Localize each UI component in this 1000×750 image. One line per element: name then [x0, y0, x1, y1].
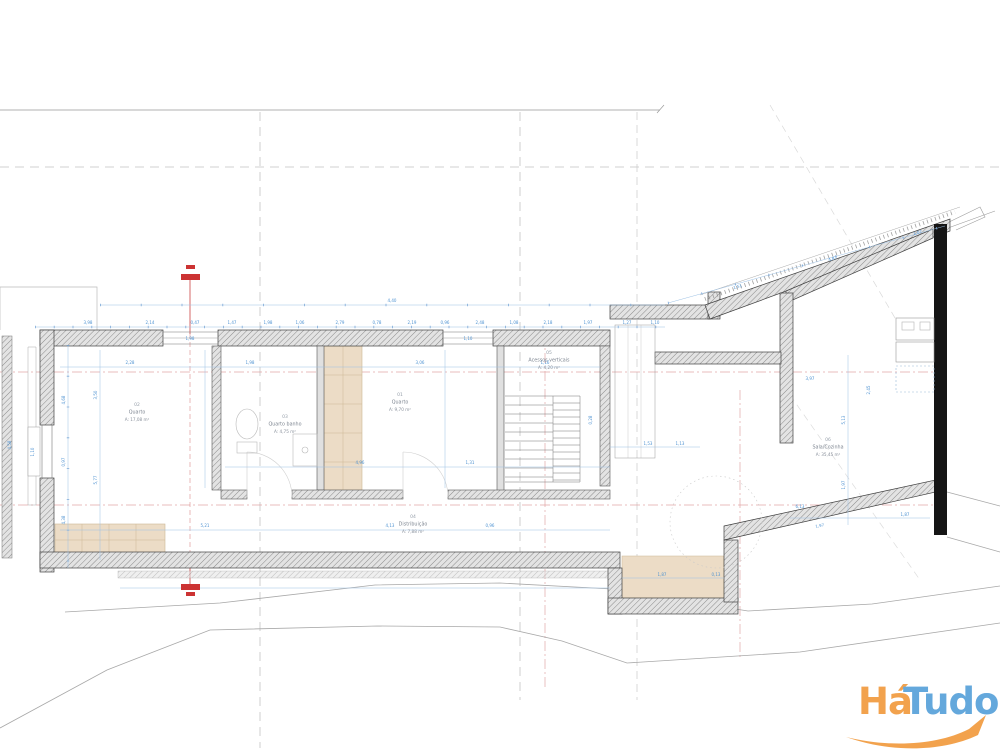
section-marker-bottom — [181, 584, 200, 590]
shower — [293, 434, 317, 466]
dimension-label: 0,47 — [191, 320, 200, 325]
toilet — [236, 409, 258, 439]
exterior-wall-bottom — [40, 552, 620, 568]
dimension-label: 1,87 — [658, 572, 667, 577]
dimension-label: 5,13 — [841, 415, 846, 424]
dimension-label: 0,96 — [441, 320, 450, 325]
dimension-label: 3,50 — [93, 390, 98, 399]
dimension-label: 1,97 — [815, 522, 825, 529]
partition-wall — [292, 490, 403, 499]
dimension-label: 3,98 — [84, 320, 93, 325]
dimension-label: 1,87 — [901, 512, 910, 517]
site-boundary — [0, 287, 97, 332]
room-area: A: 17,08 m² — [125, 417, 150, 422]
section-marker-top — [186, 265, 195, 269]
footing-line — [118, 571, 610, 578]
stairs — [505, 325, 655, 482]
dimension-label: 4,68 — [61, 395, 66, 404]
partition-wall — [448, 490, 610, 499]
dimension-label: 1,13 — [676, 441, 685, 446]
floor-plan-drawing: 3,982,140,471,471,981,062,790,782,190,96… — [0, 0, 1000, 750]
room-name: Acessos verticais — [528, 358, 570, 364]
step-out-wall — [724, 540, 738, 602]
corridor-wall-bottom — [655, 352, 781, 364]
dimension-label: 0,78 — [373, 320, 382, 325]
room-name: Sala/Cozinha — [812, 445, 843, 451]
wardrobe — [324, 346, 362, 490]
building-walls — [28, 207, 960, 614]
room-number: 02 — [134, 402, 140, 408]
dimension-label: 1,97 — [584, 320, 593, 325]
dimension-label: 3,06 — [416, 360, 425, 365]
dimension-label: 1,10 — [30, 447, 35, 456]
dimension-label: 1,53 — [644, 441, 653, 446]
exterior-wall-top — [40, 330, 163, 346]
exterior-wall-top — [493, 330, 610, 346]
dimension-label: 1,06 — [296, 320, 305, 325]
room-name: Distribuição — [399, 522, 428, 528]
roof-edge-flag — [945, 207, 985, 230]
partition-wall — [221, 490, 247, 499]
interior-wall-diagonal — [786, 229, 933, 303]
dimension-label: 0,28 — [588, 415, 593, 424]
dimension-label: 1,51 — [733, 283, 743, 290]
room-area: A: 9,70 m² — [389, 407, 411, 412]
dimension-label: 5,21 — [201, 523, 210, 528]
dimension-label: 4,58 — [7, 440, 12, 449]
room-name: Quarto — [392, 400, 409, 406]
floor-plan-image: 3,982,140,471,471,981,062,790,782,190,96… — [0, 0, 1000, 750]
dimension-label: 1,08 — [510, 320, 519, 325]
dimension-label: 2,79 — [336, 320, 345, 325]
partition-wall — [317, 346, 324, 490]
dimension-label: 2,14 — [146, 320, 155, 325]
hatudo-logo: Há Tudo — [846, 680, 998, 748]
exterior-wall-diagonal-lower — [724, 479, 940, 540]
room-area: A: 35,45 m² — [816, 452, 841, 457]
room-area: A: 4,75 m² — [274, 429, 296, 434]
room-area: A: 7,88 m² — [402, 529, 424, 534]
dimension-label: 0,96 — [486, 523, 495, 528]
dimension-label: 1,47 — [228, 320, 237, 325]
dimension-label: 1,27 — [623, 320, 632, 325]
dimension-label: 5,77 — [93, 475, 98, 484]
kitchen-counter — [896, 318, 934, 392]
dimension-label: 0,97 — [61, 457, 66, 466]
room-name: Quarto — [129, 410, 146, 416]
stair-wall — [600, 346, 610, 486]
corridor-wall-top — [610, 305, 710, 319]
stair-void — [615, 325, 655, 458]
living-room-wall-left — [780, 293, 793, 443]
room-number: 01 — [397, 392, 403, 398]
dimension-label: 4,40 — [388, 298, 397, 303]
dimension-label: 0,13 — [712, 572, 721, 577]
insulation-ticks — [705, 212, 955, 299]
partition-wall — [212, 346, 221, 490]
room-number: 06 — [825, 437, 831, 443]
step-out-wall — [608, 598, 738, 614]
tick-mark — [657, 105, 664, 113]
section-markers — [181, 265, 200, 596]
room-area: A: 4,20 m² — [538, 365, 560, 370]
dimension-label: 6,13 — [796, 504, 805, 509]
room-number: 05 — [546, 350, 552, 356]
bathroom-fixtures — [236, 409, 317, 466]
dimension-label: 1,10 — [651, 320, 660, 325]
dimension-label: 4,13 — [386, 523, 395, 528]
room-name: Quarto banho — [268, 422, 301, 428]
dimension-label: 4,96 — [356, 460, 365, 465]
appliance-dashed — [896, 366, 934, 392]
dimension-label: 4,38 — [61, 515, 66, 524]
dimension-label: 2,19 — [408, 320, 417, 325]
dimension-label: 2,18 — [544, 320, 553, 325]
dimension-label: 2,45 — [866, 385, 871, 394]
terrace-slab — [622, 556, 724, 598]
dimension-label: 1,97 — [841, 480, 846, 489]
section-marker-top — [181, 274, 200, 280]
room-number: 03 — [282, 414, 288, 420]
dimension-label: 1,98 — [186, 336, 195, 341]
section-marker-bottom — [186, 592, 195, 596]
solid-wall-right — [934, 224, 947, 535]
dimension-label: 2,48 — [476, 320, 485, 325]
logo-text-tudo: Tudo — [903, 680, 998, 723]
dimension-label: 1,31 — [466, 460, 475, 465]
toilet-tank — [237, 442, 257, 453]
dimension-label: 1,98 — [264, 320, 273, 325]
room-number: 04 — [410, 514, 416, 520]
drain — [302, 447, 308, 453]
dimension-label: 3,97 — [806, 376, 815, 381]
dimension-label: 1,10 — [464, 336, 473, 341]
partition-wall — [497, 346, 504, 494]
dimension-label: 2,28 — [126, 360, 135, 365]
exterior-wall-left — [40, 330, 54, 425]
room-labels: 02QuartoA: 17,08 m²03Quarto banhoA: 4,75… — [125, 350, 844, 534]
exterior-wall-top — [218, 330, 443, 346]
dimension-label: 1,98 — [246, 360, 255, 365]
